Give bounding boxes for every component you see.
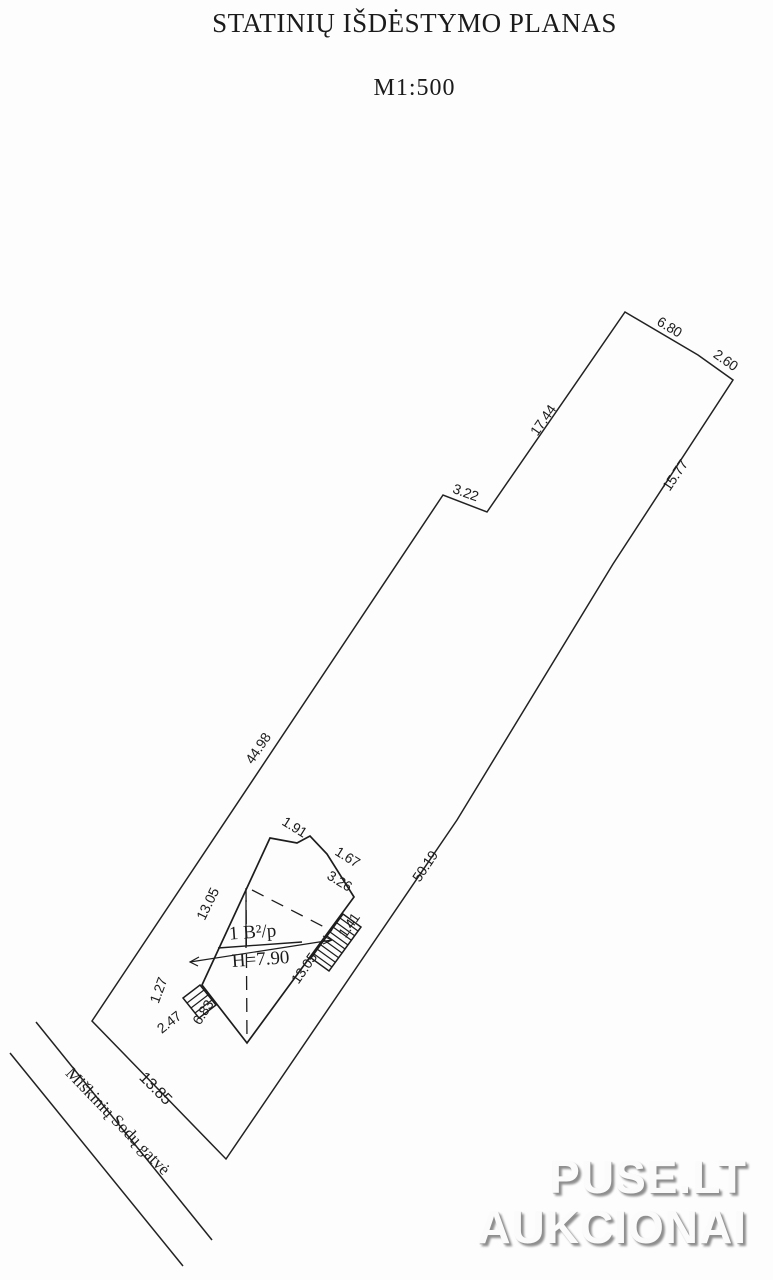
dim-50-19: 50.19 xyxy=(409,847,441,884)
site-plan-drawing: 6.80 2.60 15.77 50.19 17.44 3.22 44.98 1… xyxy=(0,0,773,1280)
dim-3-22: 3.22 xyxy=(451,480,481,504)
dim-6-80: 6.80 xyxy=(654,313,685,340)
building-label: 1 B²/p xyxy=(228,920,277,944)
dim-1-67: 1.67 xyxy=(332,843,363,871)
dim-15-77: 15.77 xyxy=(659,456,691,493)
dim-17-44: 17.44 xyxy=(527,401,560,438)
dim-2-60: 2.60 xyxy=(711,346,742,374)
watermark-line2: AUKCIONAI xyxy=(477,1202,747,1252)
parcel-boundary xyxy=(92,312,733,1159)
dim-13-05-left: 13.05 xyxy=(193,885,222,923)
dim-1-27: 1.27 xyxy=(146,975,170,1005)
dim-44-98: 44.98 xyxy=(242,729,274,766)
watermark: PUSE.LT AUKCIONAI xyxy=(477,1152,747,1252)
dim-2-47: 2.47 xyxy=(154,1007,185,1036)
dim-13-85: 13.85 xyxy=(136,1069,176,1109)
watermark-line1: PUSE.LT xyxy=(477,1152,747,1202)
dim-1-91: 1.91 xyxy=(279,813,310,841)
building-height-label: H=7.90 xyxy=(231,947,290,972)
